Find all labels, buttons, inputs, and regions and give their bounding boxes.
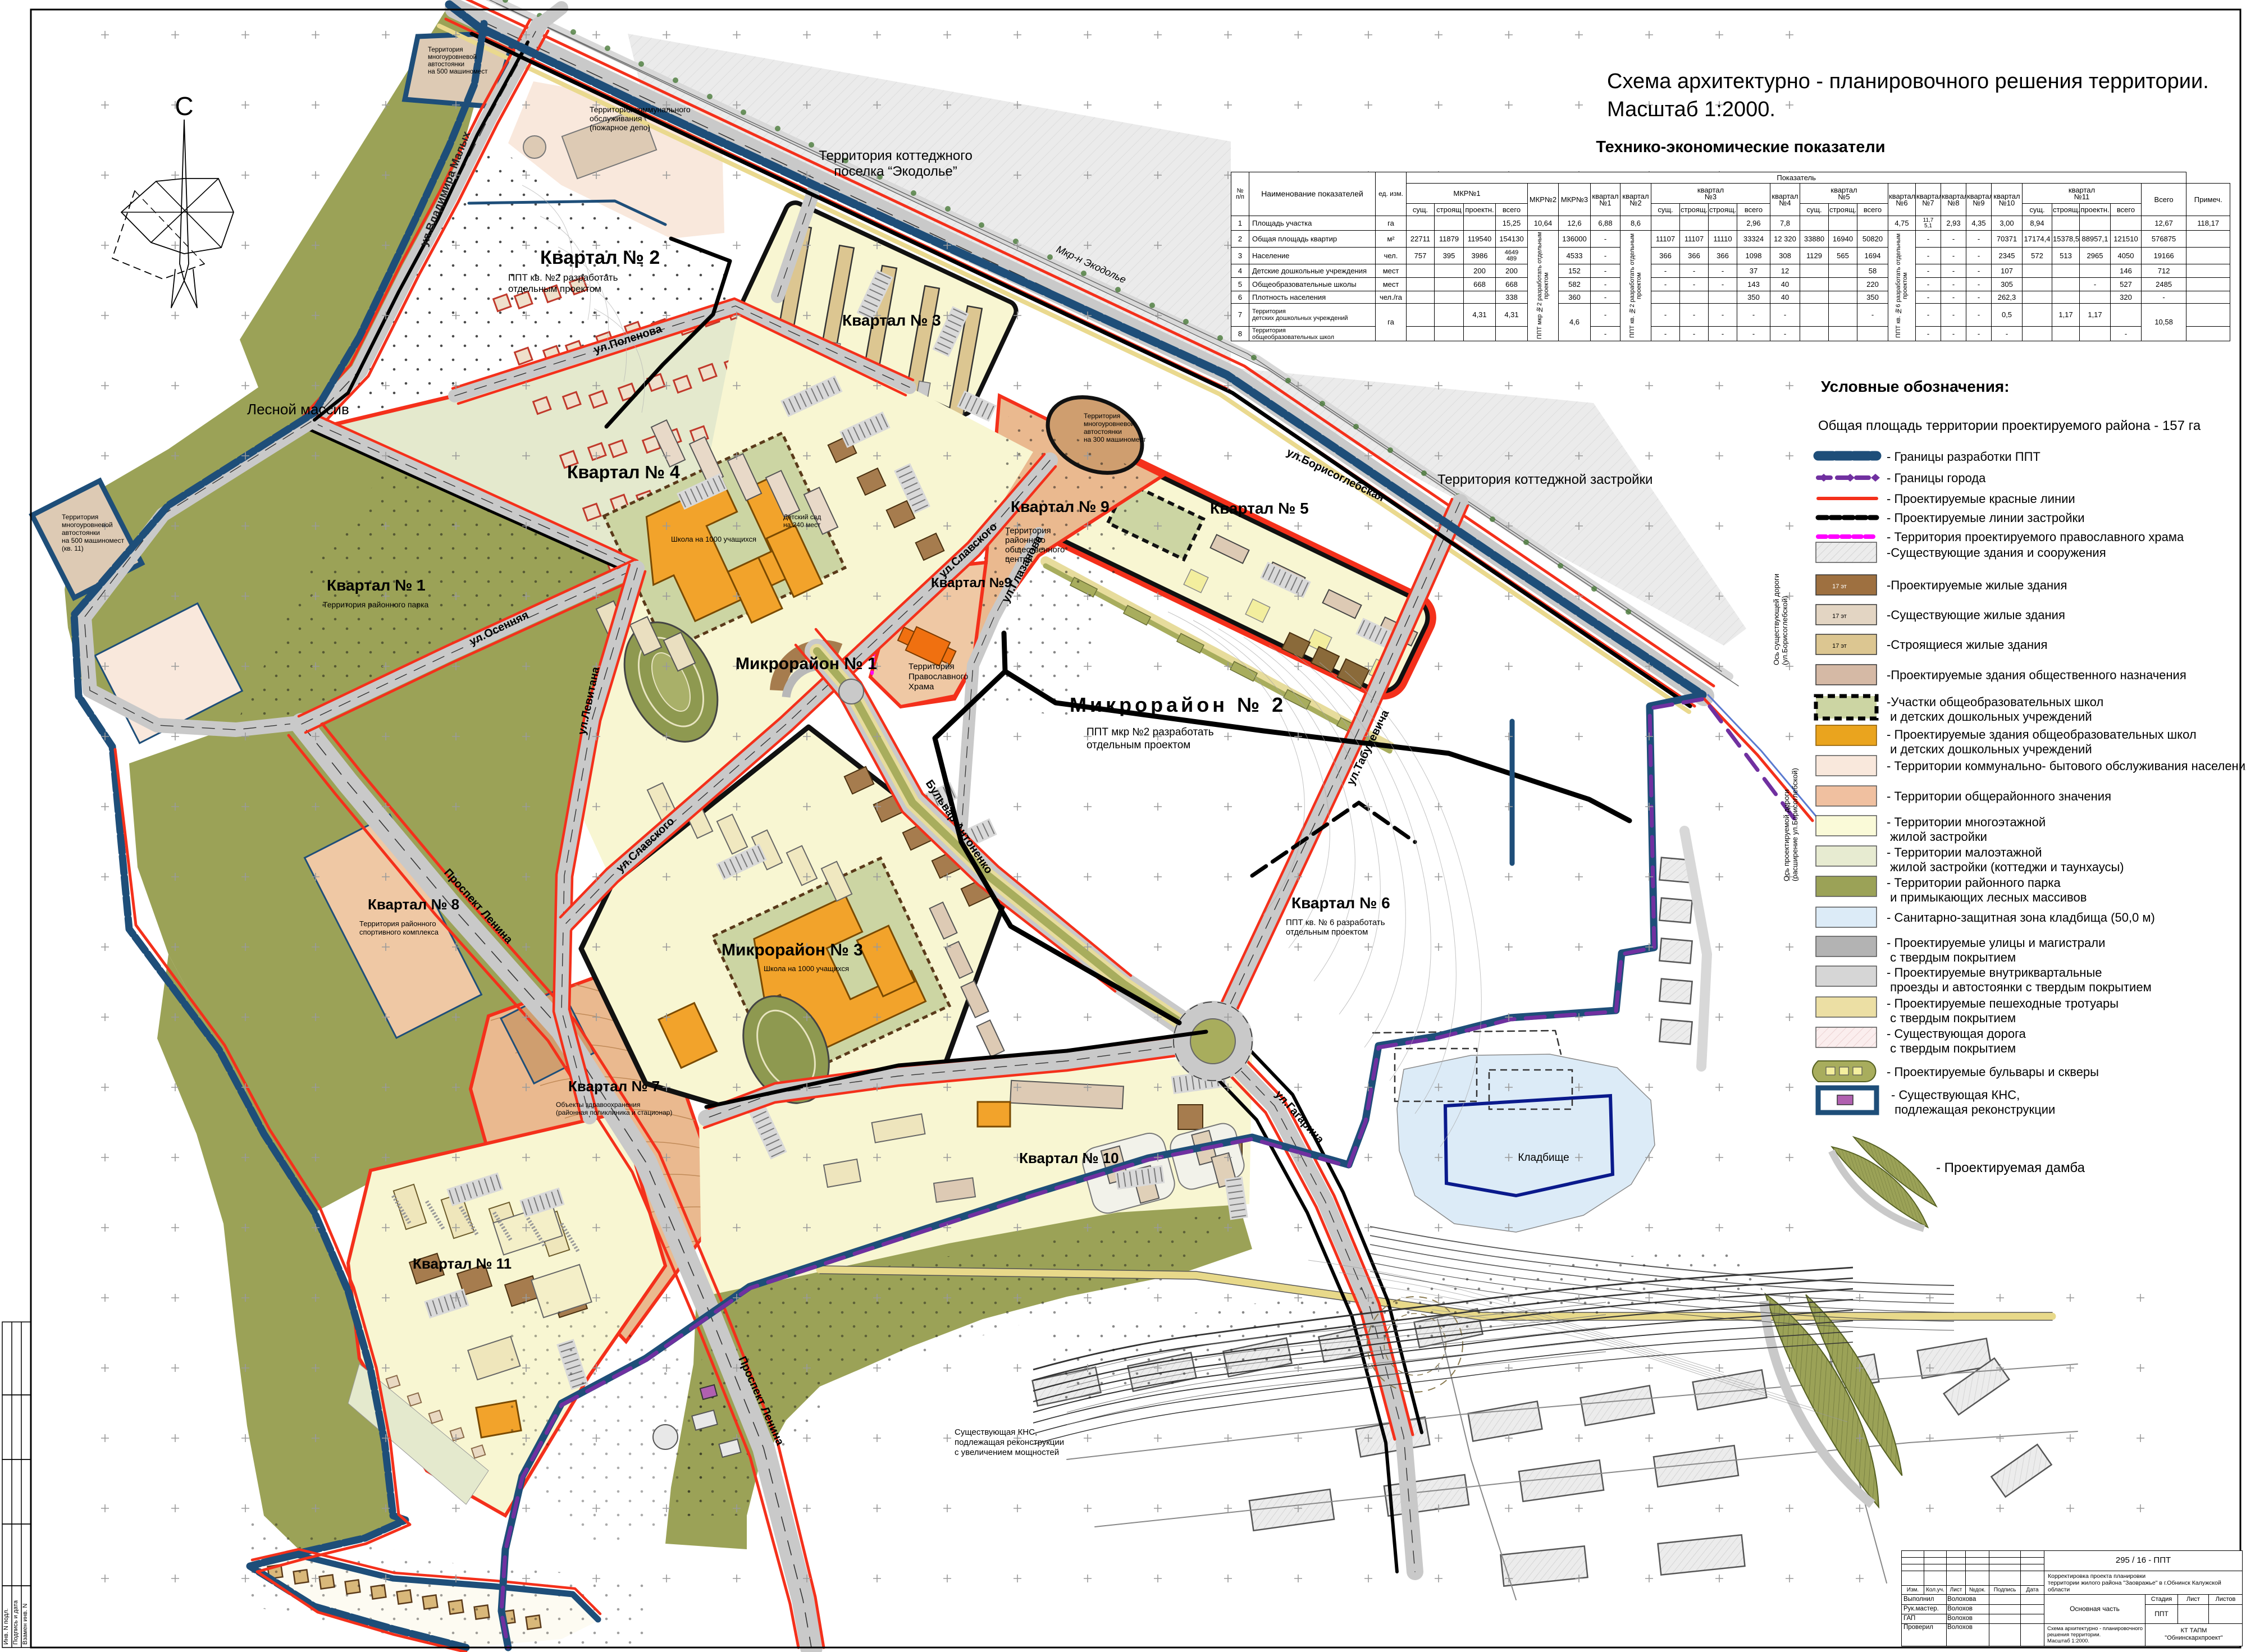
- svg-text:-Проектируемые жилые здания: -Проектируемые жилые здания: [1887, 578, 2067, 592]
- svg-text:- Проектируемые линии застройк: - Проектируемые линии застройки: [1887, 511, 2085, 525]
- svg-text:-Проектируемые здания обществ: -Проектируемые здания общественного назн…: [1887, 668, 2186, 682]
- svg-text:- Проектируемая дамба: - Проектируемая дамба: [1936, 1160, 2085, 1175]
- svg-text:-Участки общеобразовательных ш: -Участки общеобразовательных школ и детс…: [1887, 695, 2103, 724]
- svg-text:- Существующая КНС, подлежа: - Существующая КНС, подлежащая реконстру…: [1891, 1088, 2055, 1116]
- svg-text:-Существующие жилые здания: -Существующие жилые здания: [1887, 608, 2065, 622]
- svg-text:- Территории общерайонного зна: - Территории общерайонного значения: [1887, 789, 2111, 803]
- svg-text:- Границы разработки ППТ: - Границы разработки ППТ: [1887, 450, 2040, 464]
- svg-text:- Проектируемые внутрикварталь: - Проектируемые внутриквартальные проезд…: [1887, 965, 2152, 994]
- svg-text:-Существующие здания и сооруже: -Существующие здания и сооружения: [1887, 546, 2106, 560]
- svg-text:- Санитарно-защитная зона клад: - Санитарно-защитная зона кладбища (50,0…: [1887, 910, 2155, 925]
- svg-text:- Существующая дорога с твер: - Существующая дорога с твердым покрытие…: [1887, 1027, 2026, 1055]
- svg-text:- Проектируемые бульвары и скв: - Проектируемые бульвары и скверы: [1887, 1065, 2099, 1079]
- svg-text:Условные обозначения:: Условные обозначения:: [1821, 378, 2010, 395]
- svg-text:17 эт: 17 эт: [1832, 643, 1847, 649]
- svg-text:- Территории районного парка: - Территории районного парка и примыкающ…: [1887, 876, 2087, 904]
- svg-text:- Проектируемые здания общеобр: - Проектируемые здания общеобразовательн…: [1887, 727, 2197, 756]
- svg-text:17 эт: 17 эт: [1832, 613, 1847, 620]
- svg-text:- Территории малоэтажной жило: - Территории малоэтажной жилой застройки…: [1887, 845, 2124, 874]
- svg-text:- Территории коммунально- быто: - Территории коммунально- бытового обслу…: [1887, 759, 2246, 773]
- svg-text:- Границы города: - Границы города: [1887, 471, 1986, 485]
- svg-text:- Проектируемые пешеходные тро: - Проектируемые пешеходные тротуары с тв…: [1887, 996, 2119, 1025]
- svg-text:- Территория проектируемого пр: - Территория проектируемого православног…: [1887, 530, 2184, 544]
- svg-text:- Проектируемые улицы и магист: - Проектируемые улицы и магистрали с тве…: [1887, 936, 2105, 964]
- svg-text:- Проектируемые красные линии: - Проектируемые красные линии: [1887, 492, 2075, 506]
- svg-text:17 эт: 17 эт: [1832, 583, 1847, 590]
- svg-text:Общая площадь территории проек: Общая площадь территории проектируемого …: [1818, 418, 2201, 433]
- svg-text:- Территории многоэтажной жил: - Территории многоэтажной жилой застройк…: [1887, 815, 2046, 844]
- svg-text:-Строящиеся жилые здания: -Строящиеся жилые здания: [1887, 638, 2047, 652]
